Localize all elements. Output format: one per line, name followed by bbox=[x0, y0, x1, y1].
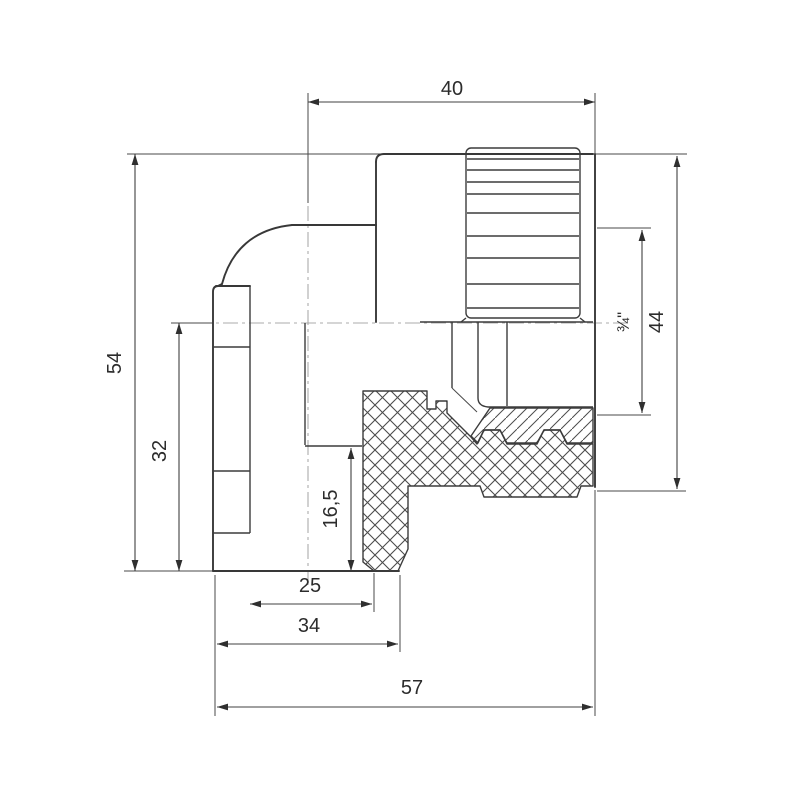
dim-57-label: 57 bbox=[401, 677, 423, 699]
dim-44-label: 44 bbox=[646, 311, 668, 333]
dim-32-label: 32 bbox=[149, 440, 171, 462]
knurled-section bbox=[461, 148, 585, 322]
dimension-57: 57 bbox=[217, 677, 593, 710]
thread-bore-line bbox=[478, 322, 593, 407]
dimension-34: 34 bbox=[217, 615, 398, 647]
technical-drawing-page: 40 54 32 16,5 25 34 57 bbox=[0, 0, 800, 800]
dimension-40: 40 bbox=[308, 78, 595, 105]
dim-40-label: 40 bbox=[441, 78, 463, 100]
dimension-16-5: 16,5 bbox=[320, 448, 354, 571]
elbow-outer-arc bbox=[222, 225, 292, 284]
dim-16-5-label: 16,5 bbox=[320, 490, 342, 529]
dimension-thread-3-4: ¾" bbox=[614, 230, 645, 413]
dim-54-label: 54 bbox=[104, 352, 126, 374]
dimension-54: 54 bbox=[104, 154, 138, 571]
knurl-outline bbox=[466, 148, 580, 318]
dimension-25: 25 bbox=[250, 575, 372, 607]
thread-groove-border bbox=[452, 388, 477, 412]
body-top-left-corner bbox=[376, 154, 384, 162]
dimension-44: 44 bbox=[646, 156, 680, 489]
dimension-32: 32 bbox=[149, 323, 182, 571]
elbow-fitting-drawing: 40 54 32 16,5 25 34 57 bbox=[0, 0, 800, 800]
dim-25-label: 25 bbox=[299, 575, 321, 597]
socket-left-wall-edge bbox=[213, 284, 222, 571]
dim-34-label: 34 bbox=[298, 615, 320, 637]
hatch-section bbox=[363, 322, 593, 571]
dim-thread-label: ¾" bbox=[614, 312, 633, 332]
